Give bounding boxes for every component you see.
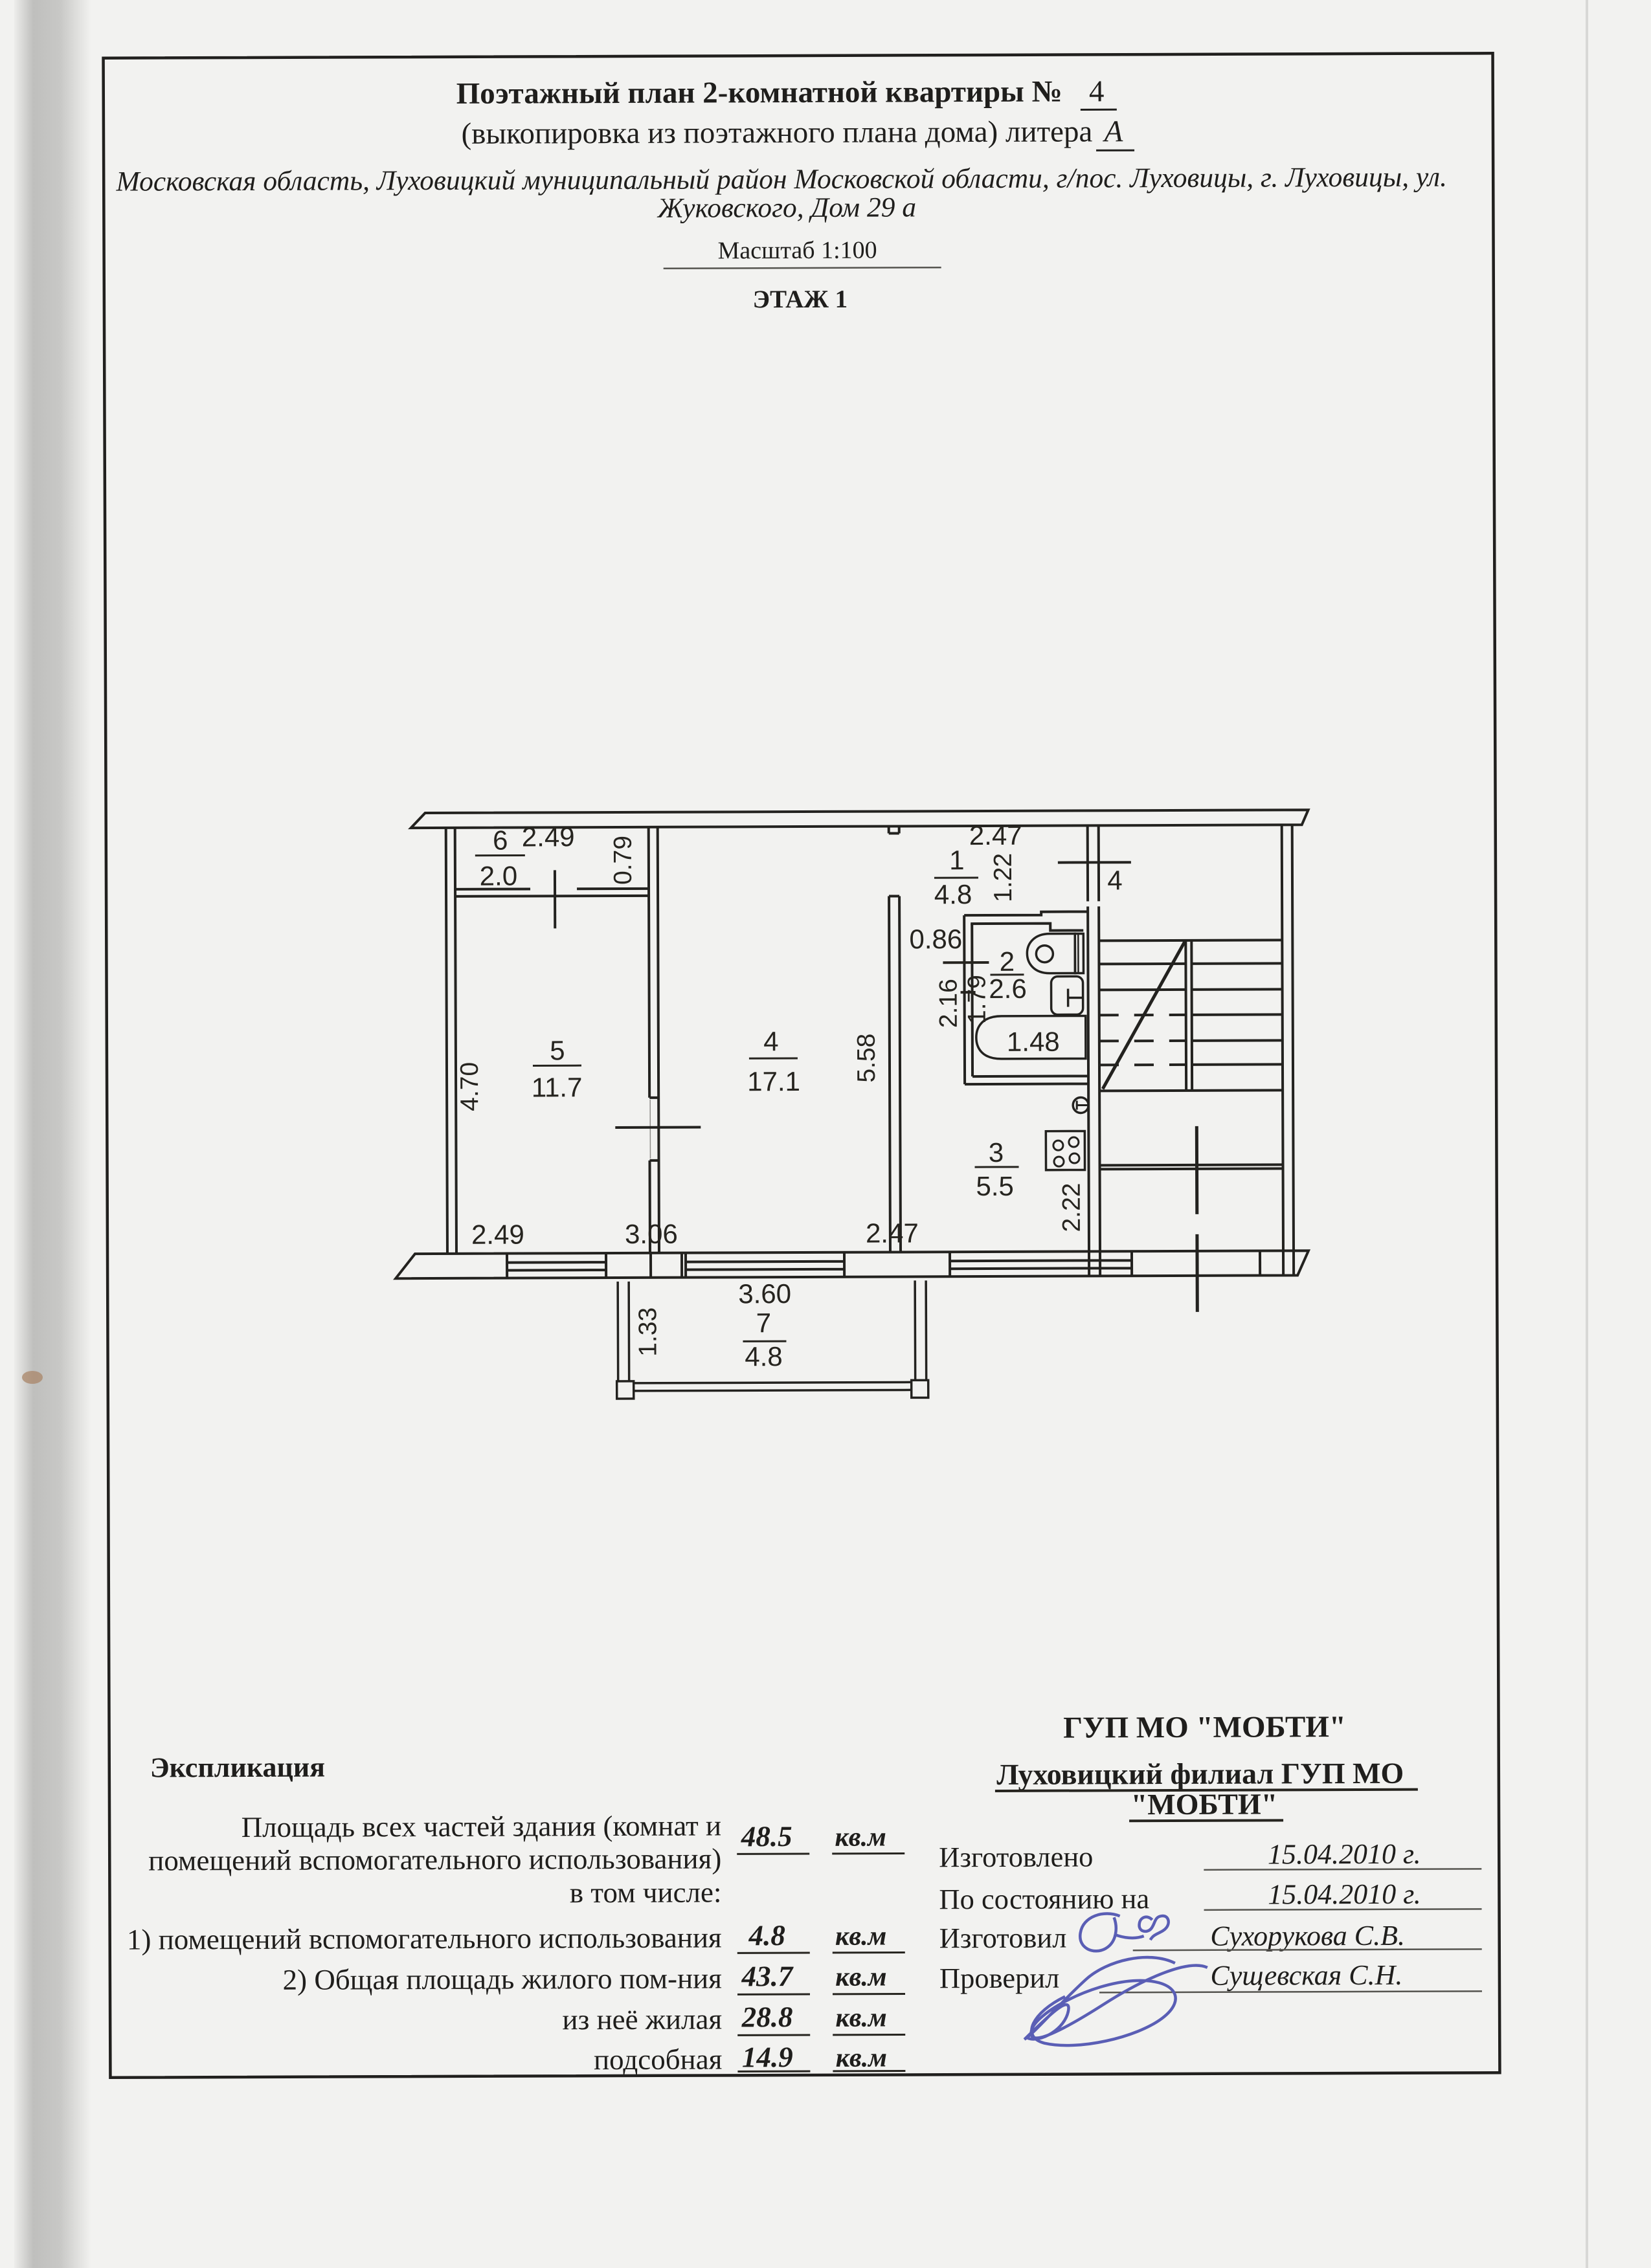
svg-text:48.5: 48.5	[741, 1820, 792, 1852]
svg-text:17.1: 17.1	[747, 1066, 800, 1096]
svg-text:2: 2	[1000, 946, 1015, 977]
svg-text:2.22: 2.22	[1058, 1183, 1086, 1232]
svg-text:Масштаб 1:100: Масштаб 1:100	[717, 237, 877, 265]
svg-text:1.79: 1.79	[963, 975, 991, 1024]
svg-text:Экспликация: Экспликация	[150, 1751, 325, 1784]
svg-text:(выкопировка из поэтажного пла: (выкопировка из поэтажного плана дома) л…	[462, 115, 1093, 150]
svg-text:2.49: 2.49	[471, 1219, 524, 1249]
svg-text:помещений вспомогательного исп: помещений вспомогательного использования…	[148, 1842, 721, 1876]
svg-text:ГУП МО "МОБТИ": ГУП МО "МОБТИ"	[1063, 1710, 1346, 1745]
svg-text:1.22: 1.22	[989, 853, 1017, 902]
svg-text:1) помещений вспомогательного: 1) помещений вспомогательного использова…	[127, 1921, 722, 1955]
svg-text:4: 4	[1089, 74, 1105, 108]
svg-text:4.70: 4.70	[456, 1062, 484, 1111]
svg-text:1.33: 1.33	[634, 1307, 662, 1357]
svg-text:4.8: 4.8	[748, 1919, 785, 1951]
svg-text:5: 5	[550, 1035, 565, 1065]
svg-text:2.47: 2.47	[866, 1217, 919, 1248]
svg-text:6: 6	[493, 825, 508, 856]
svg-text:5.5: 5.5	[976, 1171, 1014, 1201]
svg-text:14.9: 14.9	[742, 2041, 793, 2073]
svg-text:Изготовил: Изготовил	[939, 1922, 1067, 1955]
svg-text:в том числе:: в том числе:	[570, 1876, 722, 1909]
svg-text:3: 3	[989, 1137, 1004, 1168]
svg-text:подсобная: подсобная	[594, 2043, 722, 2076]
svg-text:По состоянию на: По состоянию на	[939, 1882, 1149, 1915]
svg-text:Проверил: Проверил	[939, 1962, 1060, 1995]
svg-text:2.0: 2.0	[480, 861, 518, 891]
svg-text:15.04.2010 г.: 15.04.2010 г.	[1268, 1838, 1421, 1871]
svg-text:ЭТАЖ 1: ЭТАЖ 1	[753, 285, 848, 314]
svg-text:2.6: 2.6	[989, 973, 1027, 1004]
svg-text:Сущевская С.Н.: Сущевская С.Н.	[1210, 1959, 1402, 1992]
svg-text:А: А	[1103, 115, 1123, 148]
svg-text:Сухорукова С.В.: Сухорукова С.В.	[1210, 1920, 1405, 1952]
svg-text:2) Общая площадь жилого пом-ни: 2) Общая площадь жилого пом-ния	[283, 1962, 722, 1996]
svg-text:кв.м: кв.м	[835, 1922, 886, 1951]
svg-text:0.86: 0.86	[909, 924, 962, 954]
svg-text:"МОБТИ": "МОБТИ"	[1131, 1787, 1278, 1821]
svg-text:4.8: 4.8	[934, 879, 972, 909]
svg-text:3.60: 3.60	[738, 1278, 791, 1309]
svg-text:4: 4	[1107, 865, 1123, 895]
svg-text:3.06: 3.06	[625, 1219, 678, 1249]
svg-text:7: 7	[756, 1307, 772, 1338]
svg-text:15.04.2010 г.: 15.04.2010 г.	[1268, 1878, 1421, 1911]
svg-text:28.8: 28.8	[741, 2001, 793, 2033]
svg-text:кв.м: кв.м	[836, 2043, 887, 2073]
svg-text:2.47: 2.47	[969, 820, 1022, 850]
svg-text:кв.м: кв.м	[835, 2003, 886, 2033]
svg-text:из неё жилая: из неё жилая	[562, 2003, 722, 2036]
svg-text:4: 4	[763, 1026, 779, 1056]
svg-text:11.7: 11.7	[532, 1072, 583, 1102]
svg-text:1: 1	[949, 845, 965, 875]
svg-text:2.16: 2.16	[935, 979, 963, 1028]
svg-text:Поэтажный план 2-комнатной ква: Поэтажный план 2-комнатной квартиры №	[456, 75, 1062, 111]
svg-text:4.8: 4.8	[745, 1341, 783, 1372]
svg-text:Изготовлено: Изготовлено	[939, 1840, 1093, 1873]
svg-text:кв.м: кв.м	[835, 1962, 886, 1992]
svg-text:5.58: 5.58	[853, 1034, 881, 1083]
svg-text:43.7: 43.7	[741, 1960, 793, 1992]
svg-text:Площадь всех частей здания (ко: Площадь всех частей здания (комнат и	[241, 1809, 722, 1843]
svg-text:2.49: 2.49	[522, 821, 575, 852]
svg-text:Луховицкий филиал ГУП МО: Луховицкий филиал ГУП МО	[996, 1757, 1404, 1791]
svg-text:кв.м: кв.м	[835, 1823, 886, 1852]
svg-text:Жуковского, Дом 29 а: Жуковского, Дом 29 а	[657, 192, 917, 223]
svg-text:0.79: 0.79	[609, 836, 637, 885]
svg-text:1.48: 1.48	[1007, 1027, 1060, 1057]
